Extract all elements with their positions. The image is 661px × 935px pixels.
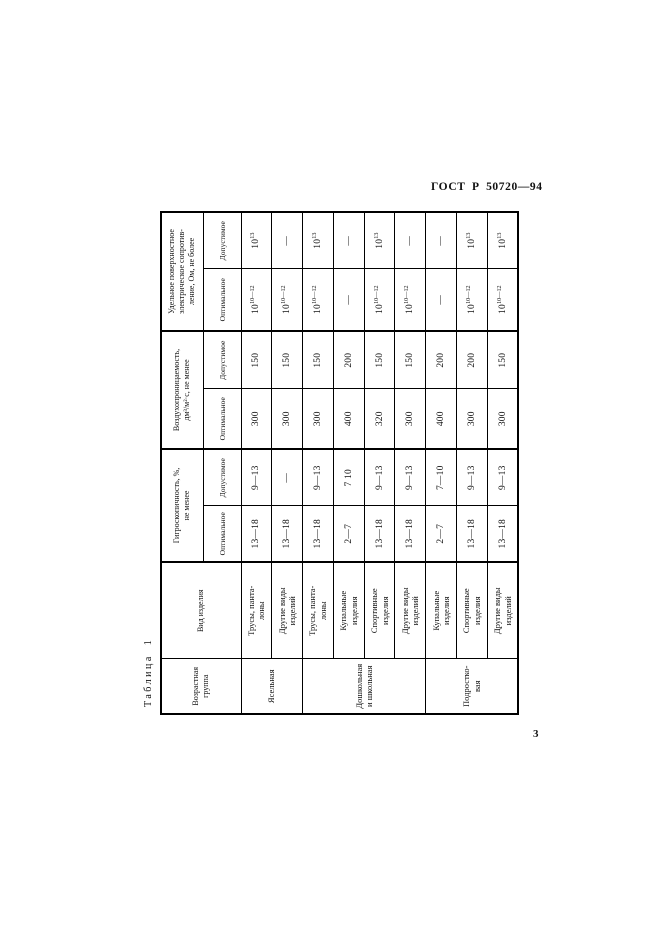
exponent: 10—12 [495,286,502,305]
product-type-cell: Трусы, панта- лоны [241,562,272,659]
value-cell: 1013 [303,212,334,269]
value-cell: — [426,212,457,269]
value-cell: 13—18 [241,506,272,562]
product-type-cell: Купальные изделия [333,562,364,659]
value-cell: 13—18 [487,506,518,562]
value-cell: 13—18 [395,506,426,562]
header-cell-group: Гигроскопичность, %, не менее [161,449,203,562]
product-type-cell: Другие виды изделий [395,562,426,659]
header-cell-group: Воздухопроницаемость, дм³/м²·с, не менее [161,331,203,449]
table-label: Таблица 1 [143,638,154,707]
table-row: Спортивные изделия13—189—133201501010—12… [364,212,395,714]
exponent: 10—12 [372,286,379,305]
value-cell: — [272,449,303,506]
exponent: 10—12 [403,286,410,305]
table-row: Купальные изделия2—77 10400200—— [333,212,364,714]
value-cell: 150 [487,331,518,389]
product-type-cell: Купальные изделия [426,562,457,659]
value-cell: — [333,212,364,269]
value-cell: 1013 [457,212,488,269]
table-row: ЯсельнаяТрусы, панта- лоны13—189—1330015… [241,212,272,714]
value-cell: 150 [364,331,395,389]
value-cell: 300 [241,389,272,449]
value-cell: 7—10 [426,449,457,506]
value-cell: 9—13 [457,449,488,506]
exponent: 13 [249,233,256,239]
value-cell: 200 [457,331,488,389]
value-cell: 1010—12 [303,269,334,331]
table-row: Спортивные изделия13—189—133002001010—12… [457,212,488,714]
age-group-cell: Дошкольная и школьная [303,659,426,714]
page-number: 3 [533,728,539,740]
value-cell: 1010—12 [364,269,395,331]
exponent: 10—12 [280,286,287,305]
header-cell-allowed: Допустимое [203,449,241,506]
table-rotation-layer: Таблица 1 Возрастная группаВид изделияГи… [160,213,519,715]
header-cell-allowed: Допустимое [203,212,241,269]
scanned-page: { "page": { "doc_code": "ГОСТ Р 50720—94… [0,0,661,935]
value-cell: 1010—12 [241,269,272,331]
value-cell: 9—13 [241,449,272,506]
header-cell-group: Удельное поверхностное электрическое соп… [161,212,203,331]
value-cell: 300 [487,389,518,449]
header-cell-age: Возрастная группа [161,659,241,714]
value-cell: 150 [241,331,272,389]
header-cell-optimal: Оптимальное [203,389,241,449]
product-type-cell: Спортивные изделия [457,562,488,659]
value-cell: 13—18 [303,506,334,562]
product-type-cell: Другие виды изделий [272,562,303,659]
value-cell: 320 [364,389,395,449]
value-cell: 13—18 [272,506,303,562]
value-cell: 150 [272,331,303,389]
value-cell: 13—18 [364,506,395,562]
value-cell: 9—13 [303,449,334,506]
value-cell: 200 [333,331,364,389]
value-cell: 400 [426,389,457,449]
rotated-table-container: Таблица 1 Возрастная группаВид изделияГи… [160,213,517,715]
table-row: Дошкольная и школьнаяТрусы, панта- лоны1… [303,212,334,714]
value-cell: 150 [395,331,426,389]
value-cell: 1010—12 [487,269,518,331]
value-cell: 1010—12 [395,269,426,331]
value-cell: 300 [395,389,426,449]
exponent: 10—12 [311,286,318,305]
value-cell: — [395,212,426,269]
header-cell-allowed: Допустимое [203,331,241,389]
exponent: 10—12 [249,286,256,305]
table-row: Другие виды изделий13—189—133001501010—1… [395,212,426,714]
value-cell: 150 [303,331,334,389]
table-row: Другие виды изделий13—18—3001501010—12— [272,212,303,714]
value-cell: 200 [426,331,457,389]
value-cell: 9—13 [395,449,426,506]
value-cell: — [272,212,303,269]
value-cell: 2—7 [426,506,457,562]
exponent: 13 [495,233,502,239]
standards-table: Возрастная группаВид изделияГигроскопичн… [160,211,519,715]
value-cell: 9—13 [487,449,518,506]
exponent: 13 [311,233,318,239]
header-cell-optimal: Оптимальное [203,506,241,562]
value-cell: 9—13 [364,449,395,506]
value-cell: — [333,269,364,331]
exponent: 13 [372,233,379,239]
table-row: Подростко- ваяКупальные изделия2—77—1040… [426,212,457,714]
table-row: Другие виды изделий13—189—133001501010—1… [487,212,518,714]
value-cell: 300 [272,389,303,449]
value-cell: 300 [457,389,488,449]
exponent: 10—12 [465,286,472,305]
value-cell: 1013 [487,212,518,269]
age-group-cell: Подростко- вая [426,659,518,714]
exponent: 13 [465,233,472,239]
header-cell-product: Вид изделия [161,562,241,659]
value-cell: 1013 [364,212,395,269]
value-cell: 2—7 [333,506,364,562]
value-cell: 1013 [241,212,272,269]
header-cell-optimal: Оптимальное [203,269,241,331]
value-cell: 7 10 [333,449,364,506]
age-group-cell: Ясельная [241,659,303,714]
value-cell: 13—18 [457,506,488,562]
value-cell: 1010—12 [457,269,488,331]
product-type-cell: Спортивные изделия [364,562,395,659]
product-type-cell: Трусы, панта- лоны [303,562,334,659]
value-cell: 1010—12 [272,269,303,331]
product-type-cell: Другие виды изделий [487,562,518,659]
value-cell: 300 [303,389,334,449]
doc-code: ГОСТ Р 50720—94 [431,181,543,193]
value-cell: 400 [333,389,364,449]
value-cell: — [426,269,457,331]
